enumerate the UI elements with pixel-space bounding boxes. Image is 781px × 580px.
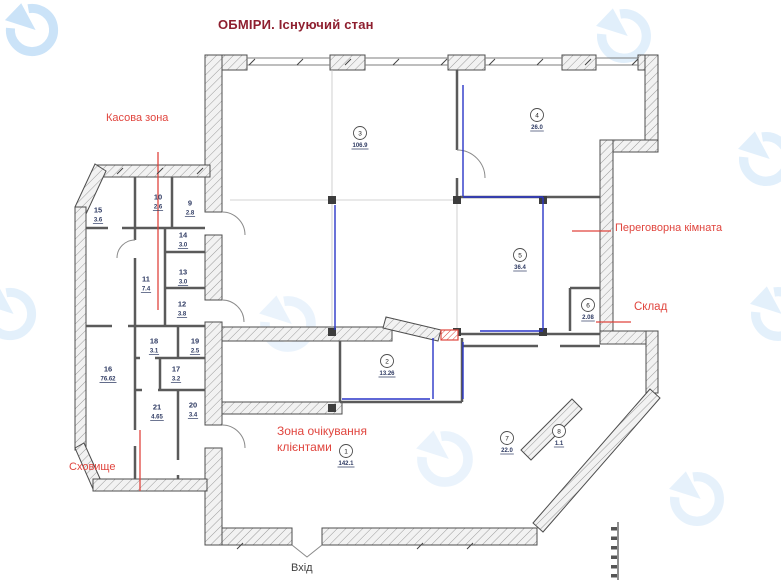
label-perehovorna-kimnata: Переговорна кімната	[615, 222, 722, 234]
door-arc	[457, 150, 485, 178]
svg-text:106.9: 106.9	[352, 143, 368, 149]
svg-text:3.4: 3.4	[189, 413, 198, 419]
svg-text:2.08: 2.08	[582, 315, 594, 321]
door-arc	[117, 240, 135, 258]
room-tag: 722.0	[500, 432, 514, 455]
room-tag: 62.08	[581, 299, 595, 322]
svg-text:11: 11	[142, 275, 150, 284]
room-tag: 192.5	[190, 337, 200, 355]
svg-text:76.62: 76.62	[100, 377, 116, 383]
door-arc	[222, 300, 244, 322]
room-tag: 203.4	[188, 401, 198, 419]
svg-text:1.1: 1.1	[555, 441, 564, 447]
room-tag: 123.8	[177, 300, 187, 318]
room-tag: 426.0	[530, 109, 544, 132]
walls-hatched	[75, 55, 660, 545]
svg-text:2.5: 2.5	[191, 349, 200, 355]
room-tag: 117.4	[141, 275, 151, 293]
svg-text:26.0: 26.0	[531, 125, 543, 131]
svg-text:3.6: 3.6	[94, 218, 103, 224]
svg-text:3.2: 3.2	[172, 377, 181, 383]
entrance-door	[292, 545, 322, 557]
svg-text:4.65: 4.65	[151, 415, 163, 421]
room-tag: 214.65	[150, 403, 164, 421]
room-tag: 3106.9	[352, 127, 369, 150]
watermark-logo-icon	[416, 431, 468, 482]
dimension-ticks	[117, 59, 638, 549]
red-marked-element	[441, 330, 458, 340]
floor-plan-canvas: 1142.1213.263106.9426.0536.462.08722.081…	[0, 0, 781, 580]
watermark-logo-icon	[738, 131, 781, 181]
door-arc	[222, 212, 245, 235]
svg-text:17: 17	[172, 365, 180, 374]
svg-text:22.0: 22.0	[501, 448, 513, 454]
svg-text:36.4: 36.4	[514, 265, 526, 271]
label-zona-ochikuvannya: Зона очікування клієнтами	[277, 423, 367, 455]
label-zona-line1: Зона очікування	[277, 423, 367, 439]
columns	[328, 196, 547, 412]
label-sklad: Склад	[634, 301, 667, 313]
room-tag: 143.0	[178, 231, 188, 249]
door-arc	[222, 425, 245, 448]
watermark-logo-icon	[669, 471, 719, 521]
svg-text:12: 12	[178, 300, 186, 309]
label-skhovyshche: Сховище	[69, 461, 115, 473]
label-vkhid: Вхід	[291, 562, 313, 574]
room-tag: 153.6	[93, 206, 103, 224]
svg-text:6: 6	[586, 302, 590, 309]
svg-text:5: 5	[518, 252, 522, 259]
svg-text:13: 13	[179, 268, 187, 277]
room-tag: 81.1	[553, 425, 566, 448]
svg-text:2.6: 2.6	[154, 205, 163, 211]
svg-text:7.4: 7.4	[142, 287, 151, 293]
svg-text:7: 7	[505, 435, 509, 442]
svg-text:15: 15	[94, 206, 102, 215]
svg-text:3.1: 3.1	[150, 349, 159, 355]
svg-text:2.8: 2.8	[186, 211, 195, 217]
svg-text:14: 14	[179, 231, 188, 240]
svg-text:19: 19	[191, 337, 199, 346]
svg-text:2: 2	[385, 358, 389, 365]
svg-text:10: 10	[154, 193, 162, 202]
room-tag: 213.26	[379, 355, 396, 378]
svg-text:3: 3	[358, 130, 362, 137]
room-tag: 536.4	[513, 249, 527, 272]
scale-bar	[611, 522, 618, 580]
svg-text:3.0: 3.0	[179, 280, 188, 286]
svg-text:16: 16	[104, 365, 112, 374]
label-kasova-zona: Касова зона	[106, 112, 168, 124]
room-tag: 183.1	[149, 337, 159, 355]
svg-text:20: 20	[189, 401, 197, 410]
svg-text:9: 9	[188, 199, 192, 208]
svg-text:4: 4	[535, 112, 539, 119]
watermark-logo-icon	[596, 8, 646, 58]
grid-lines	[230, 70, 543, 334]
svg-text:8: 8	[557, 428, 561, 435]
room-tag: 1676.62	[100, 365, 117, 383]
watermark-layer	[0, 3, 781, 521]
room-tag: 92.8	[185, 199, 195, 217]
room-tag: 133.0	[178, 268, 188, 286]
svg-text:3.0: 3.0	[179, 243, 188, 249]
label-zona-line2: клієнтами	[277, 439, 367, 455]
svg-text:142.1: 142.1	[338, 461, 354, 467]
partition-walls	[86, 70, 600, 479]
room-tag: 173.2	[171, 365, 181, 383]
drawing-title: ОБМІРИ. Існуючий стан	[218, 17, 374, 32]
floor-plan-drawing: 1142.1213.263106.9426.0536.462.08722.081…	[0, 0, 781, 580]
watermark-logo-icon	[750, 286, 781, 336]
svg-text:18: 18	[150, 337, 158, 346]
svg-text:21: 21	[153, 403, 161, 412]
svg-text:3.8: 3.8	[178, 312, 187, 318]
watermark-logo-icon	[5, 3, 54, 51]
watermark-logo-icon	[0, 287, 32, 335]
svg-text:13.26: 13.26	[379, 371, 395, 377]
